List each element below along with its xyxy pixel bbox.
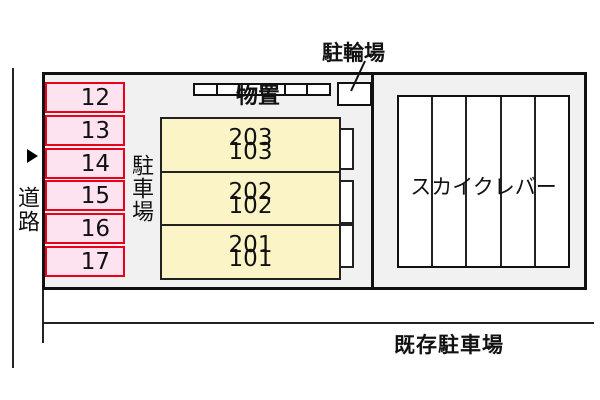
storage-cell [195, 85, 218, 94]
site-plan-diagram: 道路 12 13 14 15 16 17 駐車場 物置 駐輪場 203 103 … [0, 0, 600, 400]
parking-spot: 14 [45, 148, 125, 179]
building-outline: 203 103 202 102 201 101 [160, 117, 341, 280]
unit-number-lower: 103 [229, 145, 273, 159]
parking-spot: 17 [45, 246, 125, 277]
building-unit: 202 102 [162, 173, 339, 227]
building-unit: 203 103 [162, 119, 339, 173]
parking-spot: 12 [45, 82, 125, 113]
existing-parking-boundary-line [42, 322, 594, 324]
building-porch [339, 224, 354, 268]
entrance-arrow-icon [27, 149, 38, 163]
road-label: 道路 [13, 186, 39, 234]
boundary-extension-line [42, 290, 44, 343]
building-unit: 201 101 [162, 226, 339, 278]
parking-spot: 16 [45, 213, 125, 244]
unit-number-lower: 101 [229, 252, 273, 266]
existing-parking-label: 既存駐車場 [394, 329, 504, 359]
parking-spot: 15 [45, 180, 125, 211]
bicycle-parking-label: 駐輪場 [322, 37, 385, 67]
adjacent-building-name: スカイクレバー [397, 171, 570, 201]
building-porch [339, 128, 354, 170]
storage-cell [286, 85, 309, 94]
building-porch [339, 180, 354, 224]
parking-spot: 13 [45, 115, 125, 146]
storage-cell [308, 85, 329, 94]
parking-area-label: 駐車場 [128, 154, 152, 223]
storage-label: 物置 [236, 78, 280, 110]
unit-number-lower: 102 [229, 199, 273, 213]
